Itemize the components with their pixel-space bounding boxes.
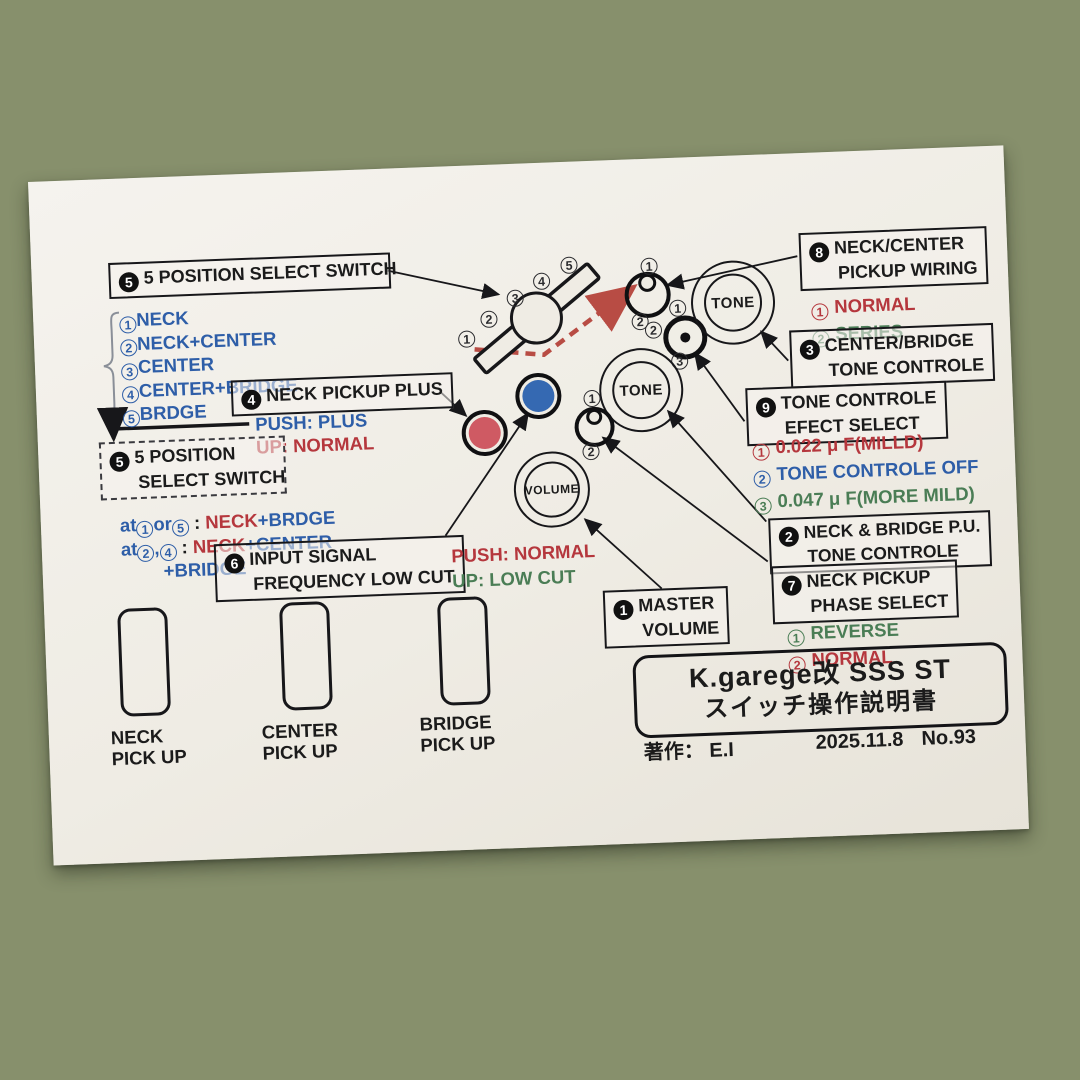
lever-pos-2: 2 xyxy=(480,307,498,327)
tone-knob-label: TONE xyxy=(611,360,671,420)
callout-neck-center-pickup-wiring: 8NECK/CENTER PICKUP WIRING xyxy=(798,226,988,291)
knob-center-dot xyxy=(680,332,690,342)
lever-pos-3: 3 xyxy=(506,286,524,306)
toggle-dot xyxy=(638,274,657,293)
callout-neck-pickup-phase-select: 7NECK PICKUP PHASE SELECT xyxy=(771,559,959,624)
toggle2-pos-1: 1 xyxy=(583,387,601,407)
neck-pickup-icon xyxy=(117,607,171,717)
toggle2-pos-2: 2 xyxy=(582,440,600,460)
center-pickup-icon xyxy=(279,601,333,711)
donut-pos-1: 1 xyxy=(669,296,687,316)
push-normal-note: PUSH: NORMAL xyxy=(451,540,596,566)
toggle-dot xyxy=(586,409,603,426)
callout-center-bridge-tone-controle: 3CENTER/BRIDGE TONE CONTROLE xyxy=(789,323,995,389)
title-plate: K.garege改 SSS ST スイッチ操作説明書 xyxy=(632,642,1009,739)
lever-pos-4: 4 xyxy=(533,269,551,289)
blue-pushbutton xyxy=(515,372,563,420)
volume-knob: VOLUME xyxy=(513,450,592,529)
black-circled-number: 5 xyxy=(118,272,139,293)
lever-pos-1: 1 xyxy=(458,327,476,347)
neck-pickup-label: NECKPICK UP xyxy=(111,724,188,769)
callout-input-signal-low-cut: 6INPUT SIGNAL FREQUENCY LOW CUT xyxy=(214,535,466,602)
callout-master-volume: 1MASTER VOLUME xyxy=(603,586,730,649)
callout-5-position-select-switch: 55 POSITION SELECT SWITCH xyxy=(108,252,391,299)
volume-knob-label: VOLUME xyxy=(523,461,581,519)
sheet-number: No.93 xyxy=(921,726,976,751)
option-normal: 1NORMAL xyxy=(811,290,916,321)
donut-pos-2: 2 xyxy=(645,318,663,338)
up-low-cut-note: UP: LOW CUT xyxy=(452,566,576,592)
callout-5-position-select-switch-side: 55 POSITION SELECT SWITCH xyxy=(99,436,287,501)
instruction-sheet: 55 POSITION SELECT SWITCH 1NECK 2NECK+CE… xyxy=(28,145,1029,865)
tone-knob-label: TONE xyxy=(703,273,763,333)
center-pickup-label: CENTERPICK UP xyxy=(261,719,339,764)
option-reverse: 1REVERSE xyxy=(787,616,899,647)
tone-effect-options: 10.022 μ F(MILLD) 2TONE CONTROLE OFF 30.… xyxy=(752,426,980,515)
blue-pushbutton-cap xyxy=(522,379,555,412)
bridge-pickup-label: BRIDGEPICK UP xyxy=(419,711,496,756)
push-plus-note: PUSH: PLUS xyxy=(255,409,368,434)
lever-pos-5: 5 xyxy=(560,253,578,273)
red-pushbutton-cap xyxy=(468,416,501,449)
sheet-date: 2025.11.8 xyxy=(815,729,904,755)
toggle1-pos-1: 1 xyxy=(640,254,658,274)
red-pushbutton xyxy=(461,409,509,457)
bridge-pickup-icon xyxy=(437,596,491,706)
author-credit: 著作： E.I xyxy=(643,733,734,765)
